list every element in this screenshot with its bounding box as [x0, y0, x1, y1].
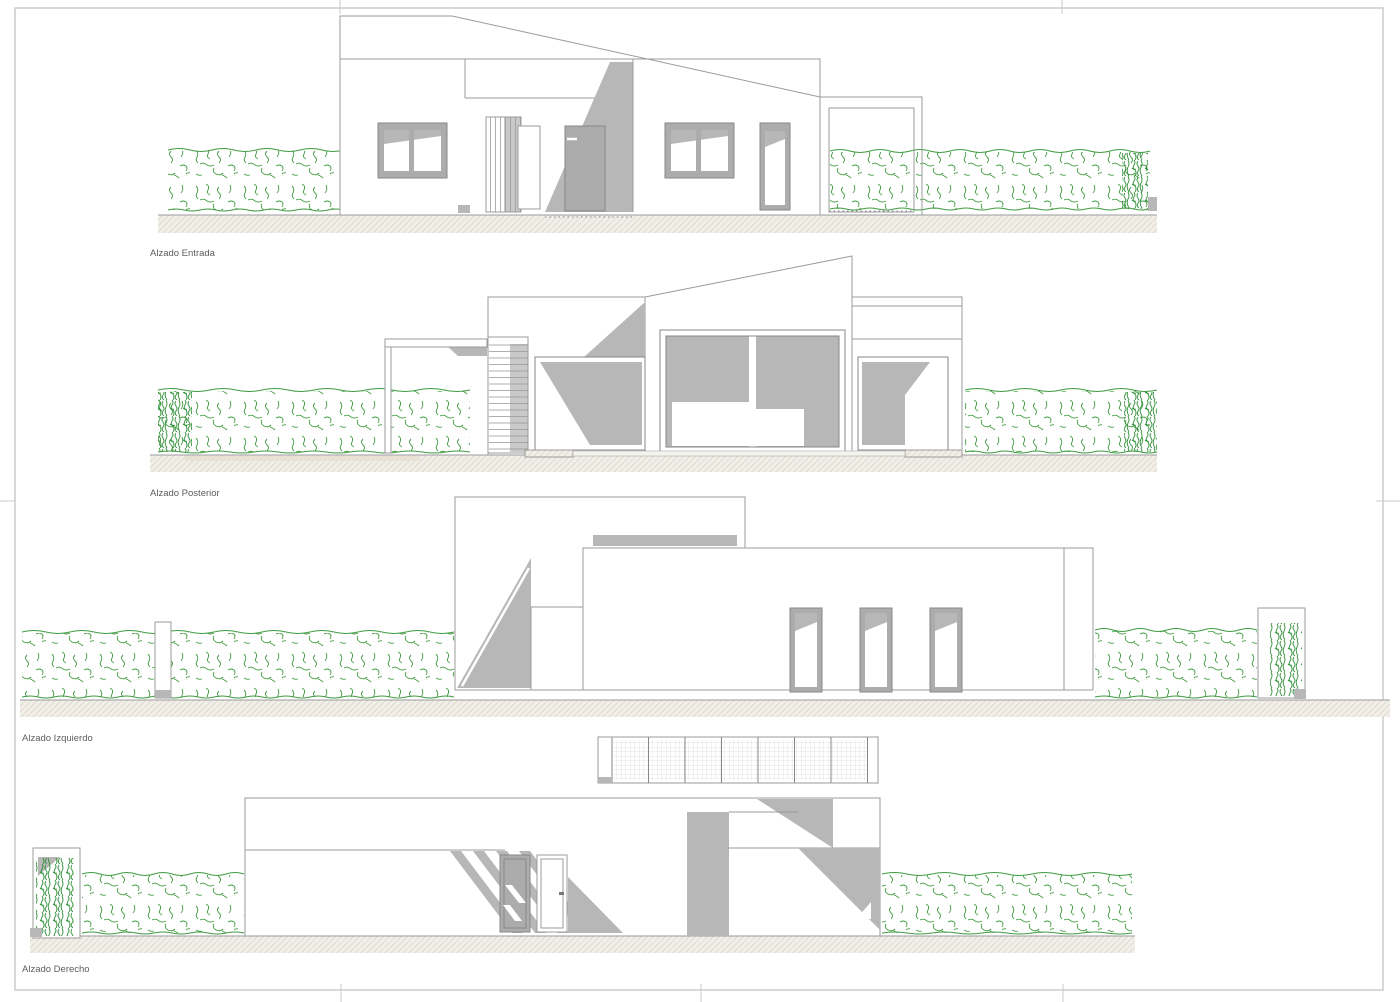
- pergola-post: [385, 347, 391, 453]
- hedge-fill: [22, 633, 454, 697]
- elevation-posterior: Alzado Posterior: [150, 256, 1157, 499]
- louver-base: [458, 205, 470, 213]
- mesh-base: [598, 777, 612, 783]
- vine-post: [1124, 392, 1156, 452]
- glass-reflection: [672, 402, 750, 446]
- terrace-strip: [185, 456, 420, 461]
- hedge-fill: [1095, 631, 1257, 697]
- garden-post: [155, 622, 171, 698]
- elevation-entrada: Alzado Entrada: [150, 16, 1157, 259]
- roof-slab-edge: [593, 535, 737, 546]
- entrance-side-door: [518, 126, 540, 209]
- hedge-fill: [82, 875, 244, 933]
- post-base: [1148, 197, 1157, 211]
- threshold: [905, 450, 962, 457]
- parapet-wall: [340, 16, 641, 59]
- door-panel-shaded: [862, 362, 905, 445]
- louver-slats: [486, 117, 521, 212]
- hedge-fill: [830, 152, 1150, 209]
- mesh-panel: [612, 740, 868, 780]
- elevation-izquierdo-label: Alzado Izquierdo: [22, 733, 93, 744]
- window-slot: [860, 608, 892, 692]
- slat-screen: [488, 337, 528, 453]
- glass-reflection: [754, 409, 804, 446]
- ground-hatch: [158, 215, 1157, 233]
- hedge-left: [22, 622, 454, 698]
- hedge-right: [965, 389, 1157, 454]
- vine-post: [36, 858, 74, 936]
- mullion: [749, 336, 756, 447]
- hedge-left: [82, 873, 244, 935]
- hedge-fill: [158, 391, 470, 452]
- elevation-izquierdo: Alzado Izquierdo: [20, 497, 1390, 744]
- beam-shadow: [448, 347, 487, 356]
- window-slot: [790, 608, 822, 692]
- hedge-fill: [168, 151, 344, 210]
- hedge-left: [158, 389, 470, 454]
- pergola-beam: [385, 339, 487, 347]
- vine-post: [158, 392, 192, 452]
- hedge-right: [882, 873, 1132, 935]
- plan-sheet-svg: Alzado Entrada: [0, 0, 1400, 1002]
- slat-lines: [489, 344, 528, 452]
- plan-sheet: Alzado Entrada: [0, 0, 1400, 1002]
- hedge-right: [830, 150, 1157, 212]
- hedge-left: [168, 149, 344, 212]
- hedge-right: [1095, 608, 1306, 699]
- roof-railing-mesh: [598, 737, 878, 783]
- side-door: [537, 855, 567, 932]
- post-base: [30, 928, 42, 937]
- elevation-posterior-label: Alzado Posterior: [150, 488, 220, 499]
- window-narrow: [760, 123, 790, 210]
- window-double: [665, 123, 734, 178]
- wall-slab-shaded: [687, 812, 729, 936]
- ground-hatch: [30, 936, 1135, 953]
- vine-post: [1270, 623, 1302, 696]
- sliding-door-right: [858, 357, 948, 450]
- house-side-left: [455, 497, 1093, 692]
- entrance-door: [565, 126, 605, 211]
- window-slot: [930, 608, 962, 692]
- elevation-derecho-label: Alzado Derecho: [22, 964, 90, 975]
- vine-post: [1122, 153, 1148, 209]
- central-glazing: [660, 330, 845, 452]
- window-double: [378, 123, 447, 178]
- terrace-edge: [573, 451, 905, 456]
- ground-hatch: [20, 700, 1390, 717]
- main-volume: [583, 548, 1093, 690]
- side-door-shaded: [500, 855, 530, 932]
- garden-post-left: [30, 848, 80, 938]
- post-base: [155, 690, 171, 698]
- hedge-fill: [882, 875, 1132, 933]
- door-panel-shaded: [590, 362, 642, 445]
- door-handle: [559, 892, 564, 895]
- elevation-entrada-label: Alzado Entrada: [150, 248, 216, 259]
- threshold: [525, 450, 573, 457]
- house-rear: [385, 256, 962, 457]
- house-side-right: [245, 737, 880, 936]
- post-base: [1294, 689, 1306, 699]
- elevation-derecho: Alzado Derecho: [22, 737, 1135, 975]
